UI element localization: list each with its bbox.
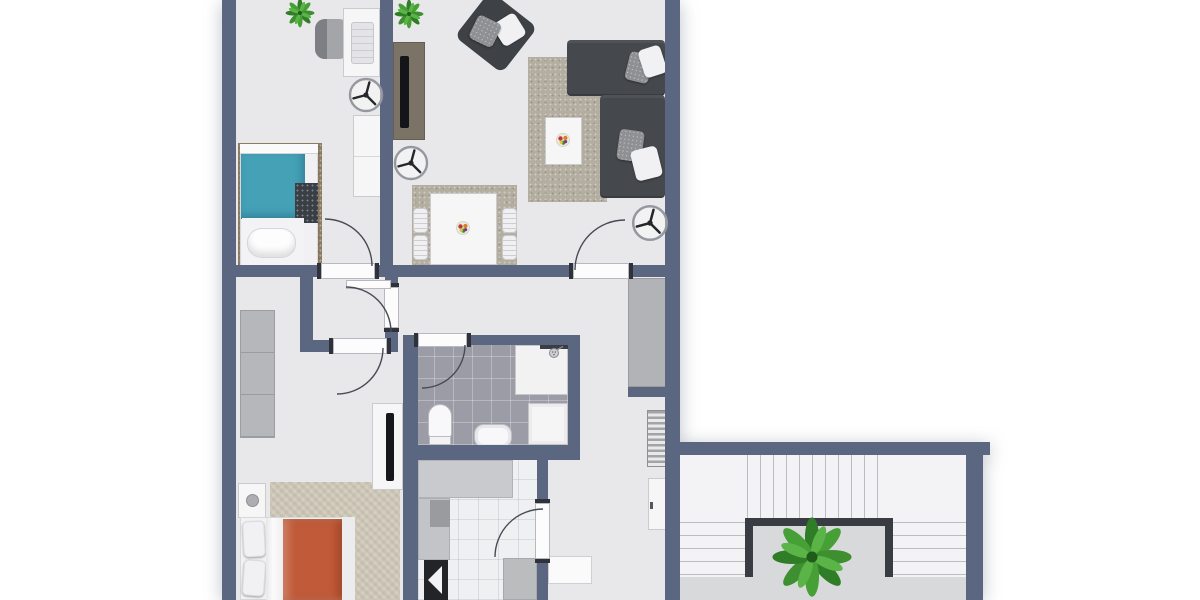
wardrobe-gray: [240, 310, 275, 438]
door-bathroom: [418, 333, 467, 347]
appliance-wedge: [428, 566, 442, 594]
dining-table: [430, 193, 497, 265]
tv-wall-panel: [372, 403, 403, 490]
kitchen-dark-appliance: [424, 560, 448, 600]
door-kitchen: [535, 503, 550, 559]
shower-glass-strip: [540, 345, 568, 349]
stair-landing-left: [680, 455, 747, 522]
stair-bottom-floor: [680, 577, 966, 600]
wall-bathroom-bottom: [403, 445, 580, 460]
floor-plan: [0, 0, 1200, 600]
wall-stairwell-right: [966, 442, 983, 600]
wall-bathroom-top-b: [465, 335, 580, 345]
laptop: [351, 22, 374, 64]
kitchen-cooktop: [430, 500, 450, 527]
shower: [515, 345, 568, 395]
tv-screen-bedroom: [386, 413, 394, 481]
kitchen-counter-top: [418, 460, 513, 498]
tv-screen: [400, 56, 409, 128]
wall-bathroom-right: [568, 335, 580, 460]
bed-dark-blanket: [295, 183, 318, 223]
bed-orange-frame: [342, 517, 355, 600]
wall-main-horizontal-b: [373, 265, 575, 277]
nightstand: [238, 483, 266, 518]
dining-chair-4: [502, 235, 517, 260]
dining-chair-2: [413, 235, 428, 260]
wall-main-horizontal-c: [627, 265, 680, 277]
bed-teal-headboard: [240, 144, 318, 154]
door-living-room: [573, 263, 629, 279]
tv-sideboard: [393, 42, 425, 140]
stair-railing-top: [745, 518, 893, 526]
wall-bedroom-kitchen-divider: [403, 335, 418, 600]
bed-pillow-1: [242, 520, 266, 557]
toilet: [428, 404, 452, 437]
stair-flight-top: [747, 455, 890, 522]
stair-landing-right: [890, 455, 966, 522]
wall-main-horizontal-a: [222, 265, 323, 277]
wall-outer-right: [665, 0, 680, 600]
floor-threshold: [548, 556, 592, 584]
wall-kitchen-right-b: [537, 557, 548, 600]
office-chair-back: [315, 19, 327, 59]
wall-stairwell-top: [680, 442, 990, 455]
stair-flight-left: [680, 522, 747, 577]
dining-chair-1: [413, 208, 428, 233]
stair-railing-left: [745, 518, 753, 577]
wardrobe-white: [353, 115, 383, 197]
radiator: [647, 410, 667, 467]
door-vestibule-hallway: [384, 287, 399, 328]
bed-orange-duvet: [283, 519, 342, 600]
coffee-table: [545, 117, 582, 165]
bed-sheet-fold: [266, 518, 284, 600]
lamp: [246, 494, 259, 507]
wall-top-divider: [380, 0, 393, 265]
armchair-pillow-gray: [468, 14, 503, 49]
stair-railing-right: [885, 518, 893, 577]
door-leaf-vestibule: [346, 280, 391, 289]
kitchen-counter-bottom-right: [503, 558, 537, 600]
wall-closet-stub: [628, 387, 667, 397]
toilet-tank: [429, 436, 451, 445]
door-bedroom-top: [321, 263, 375, 279]
door-bedroom-bottom: [333, 338, 387, 354]
cabinet-handle: [650, 502, 653, 509]
washing-machine: [528, 403, 568, 445]
built-in-closet: [628, 278, 667, 387]
dining-chair-3: [502, 208, 517, 233]
bed-rolled-duvet: [247, 228, 296, 258]
bed-pillow-2: [242, 559, 266, 596]
floor-plan-canvas: [0, 0, 1200, 600]
wall-outer-left: [222, 0, 236, 600]
stair-flight-right: [890, 522, 966, 577]
